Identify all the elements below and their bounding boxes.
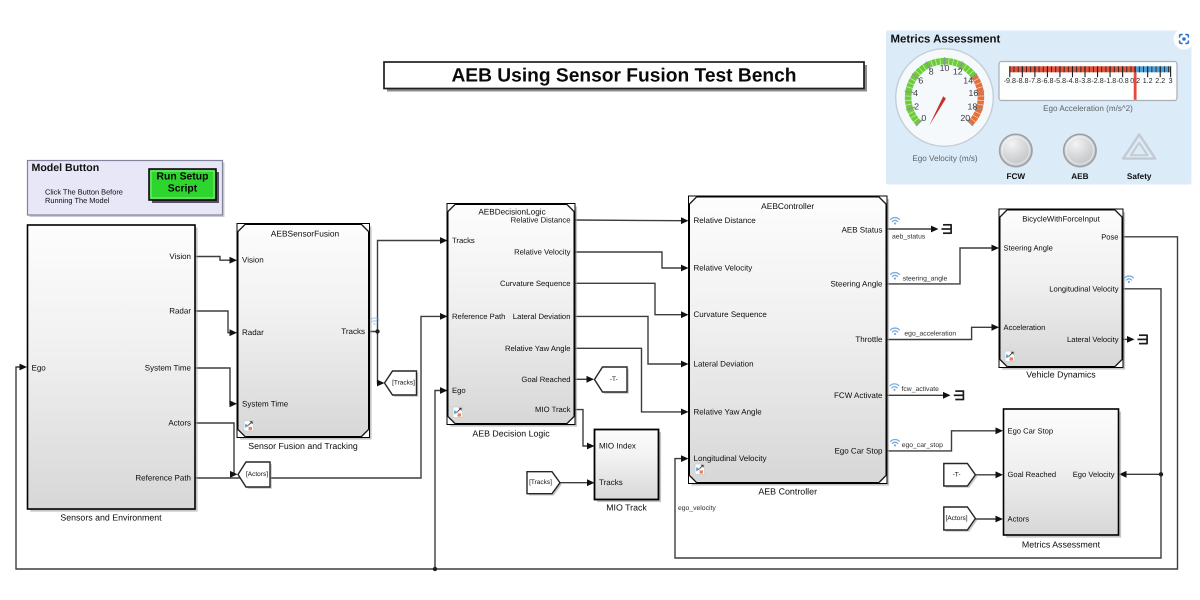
svg-text:System Time: System Time [145,364,192,373]
svg-text:Goal Reached: Goal Reached [521,375,570,384]
svg-text:10: 10 [940,63,950,73]
svg-text:AEB Decision Logic: AEB Decision Logic [472,429,550,439]
svg-text:2: 2 [914,102,919,112]
svg-text:Steering Angle: Steering Angle [830,279,883,288]
svg-text:[Tracks]: [Tracks] [392,380,415,387]
svg-text:Vehicle Dynamics: Vehicle Dynamics [1026,370,1096,380]
svg-text:Relative Distance: Relative Distance [694,216,757,225]
svg-text:-6.8: -6.8 [1041,77,1053,85]
svg-text:Lateral Velocity: Lateral Velocity [1067,335,1119,344]
svg-text:Radar: Radar [169,307,191,316]
svg-text:1.2: 1.2 [1143,77,1153,85]
svg-text:-1.8: -1.8 [1104,77,1116,85]
svg-text:14: 14 [963,75,973,85]
svg-text:Relative Yaw Angle: Relative Yaw Angle [505,344,571,353]
svg-text:2.2: 2.2 [1155,77,1165,85]
svg-text:[Tracks]: [Tracks] [529,479,552,486]
svg-text:MIO Track: MIO Track [535,405,571,414]
svg-text:Tracks: Tracks [341,327,365,336]
svg-text:-T-: -T- [610,376,618,383]
svg-text:Tracks: Tracks [599,478,623,487]
svg-text:Curvature Sequence: Curvature Sequence [500,279,571,288]
svg-text:Ego Acceleration (m/s^2): Ego Acceleration (m/s^2) [1043,104,1133,113]
svg-text:Relative Yaw Angle: Relative Yaw Angle [694,407,763,416]
svg-text:Reference Path: Reference Path [452,312,505,321]
svg-text:Sensor Fusion and Tracking: Sensor Fusion and Tracking [248,441,358,451]
svg-text:Vision: Vision [169,252,191,261]
svg-text:Relative Distance: Relative Distance [511,215,571,224]
svg-text:Run Setup: Run Setup [157,171,209,182]
svg-text:Actors: Actors [168,419,191,428]
svg-text:Throttle: Throttle [855,335,883,344]
svg-text:Goal Reached: Goal Reached [1008,470,1057,479]
svg-text:Ego: Ego [32,364,47,373]
svg-text:Vision: Vision [242,256,264,265]
svg-text:Metrics Assessment: Metrics Assessment [1022,540,1101,550]
svg-text:Relative Velocity: Relative Velocity [694,264,753,273]
svg-text:AEBController: AEBController [761,201,814,211]
svg-text:ego_acceleration: ego_acceleration [904,331,956,338]
svg-text:3: 3 [1169,77,1173,85]
svg-text:-T-: -T- [953,471,961,478]
svg-text:Ego Car Stop: Ego Car Stop [1008,427,1054,436]
svg-text:AEB Status: AEB Status [842,226,883,235]
svg-text:MIO Track: MIO Track [606,503,647,513]
svg-text:-9.8: -9.8 [1004,77,1016,85]
svg-text:Acceleration: Acceleration [1004,323,1046,332]
svg-text:-2.8: -2.8 [1091,77,1103,85]
svg-text:AEB Controller: AEB Controller [758,487,817,497]
svg-text:Lateral Deviation: Lateral Deviation [513,312,571,321]
svg-text:18: 18 [967,102,977,112]
svg-text:8: 8 [929,66,934,76]
svg-text:4: 4 [913,88,918,98]
svg-text:aeb_status: aeb_status [892,233,926,240]
svg-text:16: 16 [969,88,979,98]
svg-text:Relative Velocity: Relative Velocity [514,248,571,257]
svg-text:-3.8: -3.8 [1079,77,1091,85]
svg-text:-5.8: -5.8 [1054,77,1066,85]
svg-text:Running The Model: Running The Model [45,196,110,205]
svg-text:-4.8: -4.8 [1066,77,1078,85]
svg-text:fcw_activate: fcw_activate [902,386,940,393]
svg-text:AEB Using Sensor Fusion Test B: AEB Using Sensor Fusion Test Bench [451,65,796,86]
svg-text:Sensors and Environment: Sensors and Environment [60,513,162,523]
svg-text:AEBSensorFusion: AEBSensorFusion [271,229,340,239]
svg-text:Model Button: Model Button [32,162,100,174]
svg-text:Ego Car Stop: Ego Car Stop [834,446,883,455]
svg-text:Safety: Safety [1127,172,1152,181]
svg-text:Longitudinal Velocity: Longitudinal Velocity [1049,284,1118,293]
svg-text:Ego: Ego [452,386,466,395]
svg-text:AEB: AEB [1071,172,1088,181]
svg-text:Longitudinal Velocity: Longitudinal Velocity [694,454,767,463]
svg-text:FCW: FCW [1006,172,1025,181]
svg-text:-0.8: -0.8 [1117,77,1129,85]
svg-text:Steering Angle: Steering Angle [1004,244,1053,253]
svg-text:FCW Activate: FCW Activate [834,391,883,400]
svg-text:12: 12 [953,66,963,76]
svg-text:Script: Script [168,183,198,194]
svg-text:Tracks: Tracks [452,236,475,245]
svg-text:6: 6 [918,75,923,85]
svg-text:Click The Button Before: Click The Button Before [45,187,123,196]
svg-text:steering_angle: steering_angle [903,275,948,282]
svg-text:Lateral Deviation: Lateral Deviation [694,360,754,369]
svg-text:System Time: System Time [242,399,289,408]
svg-text:-7.8: -7.8 [1029,77,1041,85]
svg-text:MIO Index: MIO Index [599,442,636,451]
svg-text:-8.8: -8.8 [1016,77,1028,85]
svg-text:0: 0 [921,113,926,123]
svg-text:Radar: Radar [242,328,264,337]
svg-text:Ego Velocity (m/s): Ego Velocity (m/s) [912,154,978,163]
svg-text:20: 20 [960,113,970,123]
svg-text:Metrics Assessment: Metrics Assessment [891,34,1001,46]
svg-text:ego_velocity: ego_velocity [678,505,716,512]
svg-text:Ego Velocity: Ego Velocity [1073,470,1115,479]
svg-text:Curvature Sequence: Curvature Sequence [694,310,768,319]
svg-text:BicycleWithForceInput: BicycleWithForceInput [1022,215,1100,224]
svg-text:Actors: Actors [1008,515,1030,524]
svg-text:Reference Path: Reference Path [135,474,191,483]
svg-text:[Actors]: [Actors] [946,515,968,522]
svg-text:Pose: Pose [1101,232,1118,241]
svg-text:[Actors]: [Actors] [246,471,268,478]
svg-text:ego_car_stop: ego_car_stop [902,442,943,449]
